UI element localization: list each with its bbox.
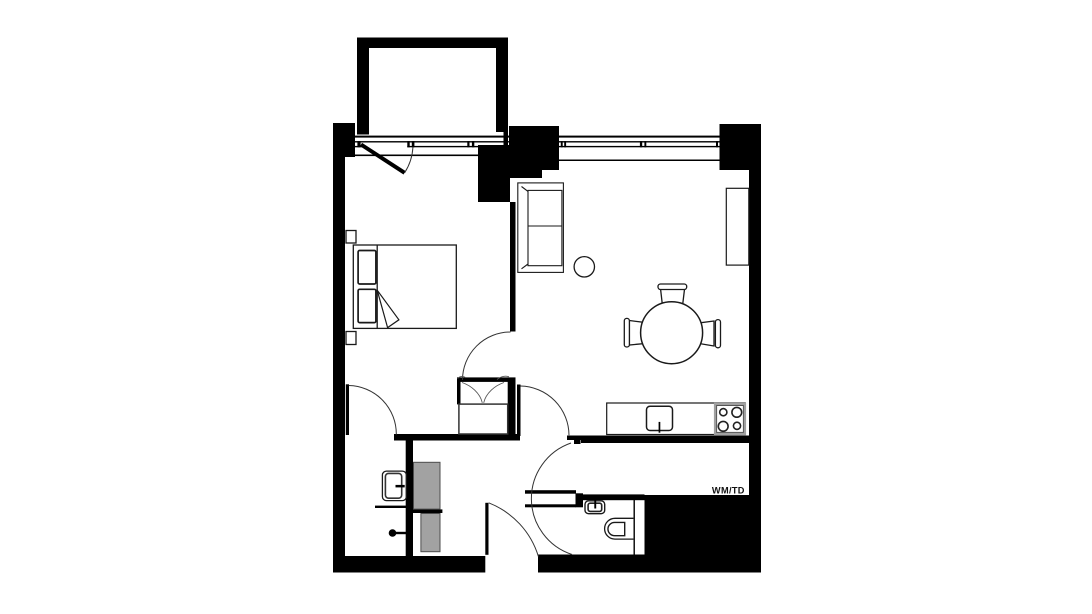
svg-text:WM/TD: WM/TD — [712, 485, 745, 495]
